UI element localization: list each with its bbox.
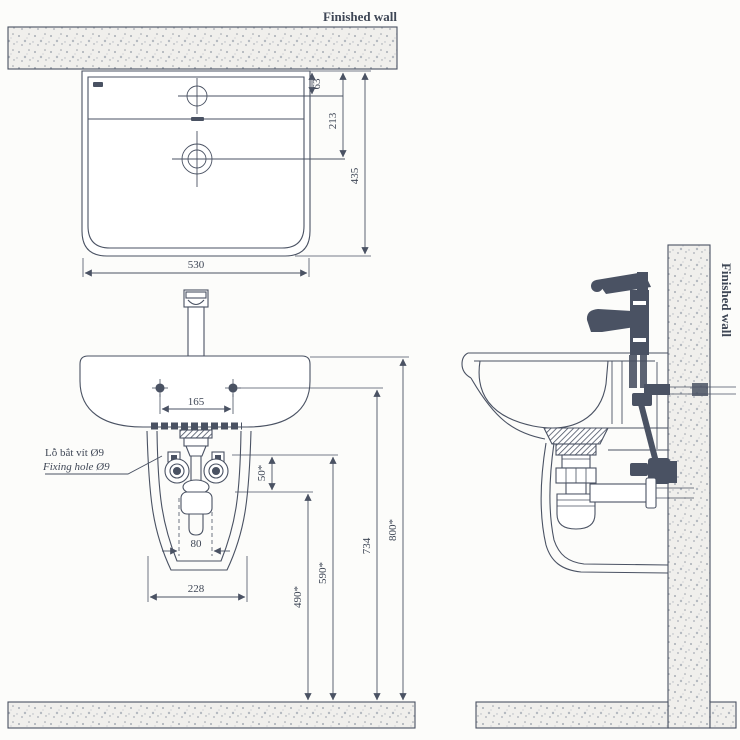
dim-text-50: 50* <box>256 465 268 482</box>
basin-plan-outer <box>82 71 310 256</box>
dim-text-213: 213 <box>327 112 339 129</box>
technical-drawing-basin-installation: Finished wall 63 213 435 530 <box>0 0 740 740</box>
top-view <box>8 27 397 277</box>
overflow-slot <box>93 82 103 87</box>
dim-228-extensions <box>148 556 247 602</box>
dim-text-590: 590* <box>317 562 329 584</box>
wall-section-side <box>668 245 710 728</box>
faucet-side <box>587 272 651 388</box>
faucet-front <box>184 290 208 356</box>
dim-text-63: 63 <box>311 78 323 90</box>
floor-section-right <box>476 702 668 728</box>
floor-section-left <box>8 702 415 728</box>
supply-hose <box>632 393 656 462</box>
wall-bolt-right <box>204 459 228 483</box>
side-view <box>462 245 736 728</box>
dim-text-800: 800* <box>387 519 399 541</box>
dim-text-435: 435 <box>349 167 361 184</box>
dim-text-165: 165 <box>188 396 205 408</box>
overflow-mark <box>191 117 204 121</box>
fixing-hole-note-vi: Lỗ bắt vít Ø9 <box>45 447 104 459</box>
floor-section-corner <box>710 702 736 728</box>
wall-section-top <box>8 27 397 69</box>
front-view <box>8 290 415 728</box>
dim-text-490: 490* <box>292 586 304 608</box>
fixing-hole-note-en: Fixing hole Ø9 <box>42 461 110 473</box>
basin-front-outline <box>80 356 310 427</box>
dim-text-530: 530 <box>188 259 205 271</box>
wall-bolt-left <box>165 459 189 483</box>
finished-wall-label-side: Finished wall <box>719 263 734 337</box>
dim-text-228: 228 <box>188 583 205 595</box>
trap-front <box>181 480 212 535</box>
drawing-canvas: Finished wall 63 213 435 530 <box>0 0 740 740</box>
dim-text-734: 734 <box>361 537 373 554</box>
finished-wall-label-top: Finished wall <box>323 9 397 24</box>
dim-text-80: 80 <box>191 538 203 550</box>
